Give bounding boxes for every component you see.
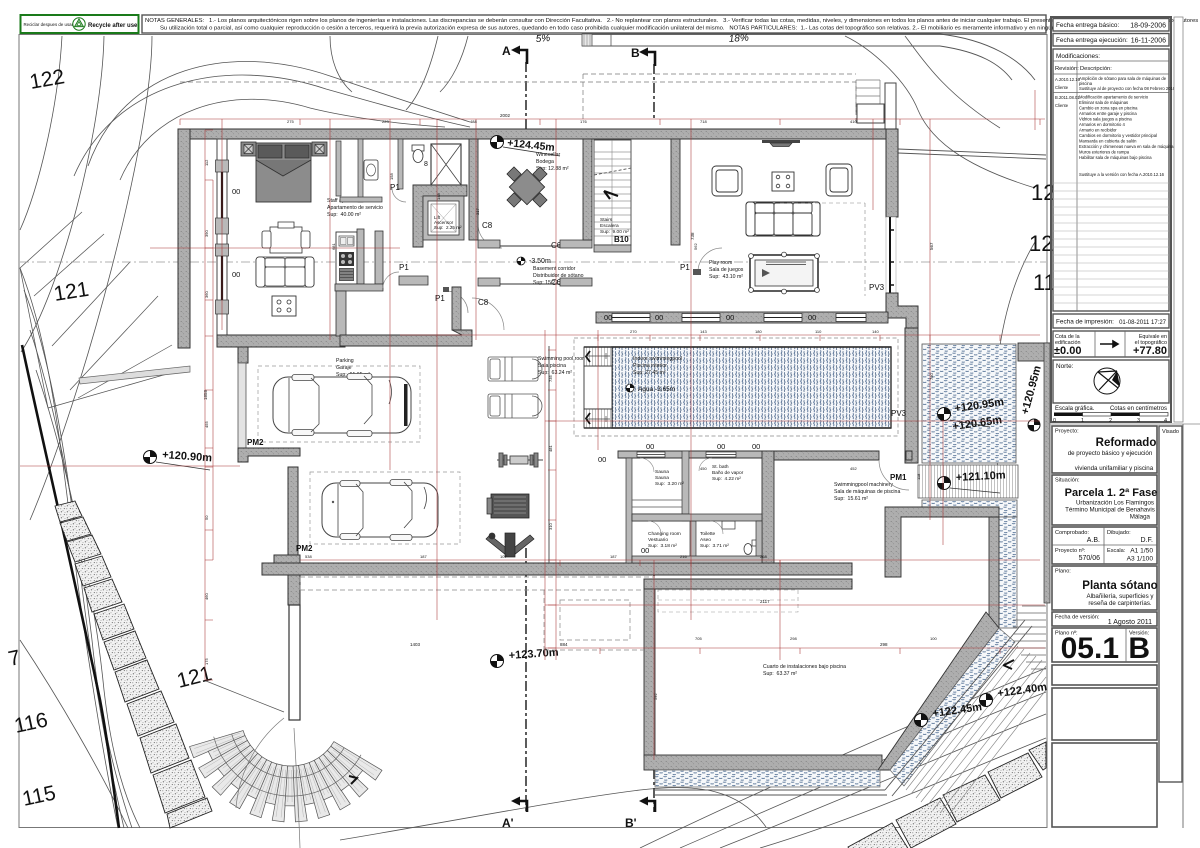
svg-text:A: A (502, 44, 511, 58)
svg-text:Cambio en zona spa en piscina: Cambio en zona spa en piscina (1079, 106, 1138, 111)
svg-text:Revisión:: Revisión: (1055, 66, 1079, 72)
svg-text:18-09-2006: 18-09-2006 (1130, 23, 1166, 30)
svg-text:Su utilización total o parcial: Su utilización total o parcial, así como… (160, 26, 1137, 32)
svg-text:5%: 5% (535, 33, 550, 45)
svg-text:718: 718 (700, 119, 707, 124)
svg-text:Situación:: Situación: (1055, 478, 1080, 484)
svg-text:Aseo: Aseo (700, 537, 711, 543)
svg-text:Toilette: Toilette (700, 531, 716, 537)
svg-text:reseña de carpinterías.: reseña de carpinterías. (1088, 600, 1152, 607)
svg-text:216: 216 (680, 554, 687, 559)
svg-text:12: 12 (1029, 231, 1053, 256)
svg-text:310: 310 (548, 523, 553, 530)
svg-text:Sup: 3.20 m²: Sup: 3.20 m² (655, 481, 684, 487)
svg-text:Fecha de impresión:: Fecha de impresión: (1056, 319, 1114, 326)
svg-text:Sup: 4.22 m²: Sup: 4.22 m² (712, 476, 741, 482)
svg-text:Mansarda en cubierta de salón: Mansarda en cubierta de salón (1079, 139, 1137, 144)
svg-text:2117: 2117 (760, 599, 770, 604)
svg-text:592: 592 (653, 693, 658, 700)
svg-text:Cuarto de instalaciones bajo p: Cuarto de instalaciones bajo piscina (763, 664, 846, 670)
svg-text:Escala:: Escala: (1107, 548, 1126, 554)
svg-text:Modificación apartamento de se: Modificación apartamento de servicio (1079, 95, 1149, 100)
svg-text:00: 00 (604, 313, 612, 322)
svg-text:Sup: 63.24 m²: Sup: 63.24 m² (538, 370, 572, 376)
svg-text:567: 567 (929, 242, 934, 250)
svg-text:Sauna: Sauna (655, 475, 669, 481)
svg-text:00: 00 (646, 442, 654, 451)
svg-text:50: 50 (204, 515, 209, 520)
svg-text:452: 452 (850, 466, 857, 471)
svg-text:Sauna: Sauna (655, 469, 669, 475)
svg-text:390: 390 (204, 230, 209, 237)
svg-text:Escalera: Escalera (600, 223, 619, 229)
svg-text:Cliente: Cliente (1055, 85, 1069, 90)
svg-text:Amplición de sótano para sala: Amplición de sótano para sala de máquina… (1079, 76, 1167, 81)
svg-text:Reciclar despues de usar: Reciclar despues de usar (24, 22, 74, 27)
svg-text:Armario en recibidor: Armario en recibidor (1079, 128, 1117, 133)
svg-text:Play room: Play room (709, 260, 732, 266)
svg-text:16-11-2006: 16-11-2006 (1131, 38, 1166, 45)
svg-text:Bodega: Bodega (536, 159, 554, 165)
svg-text:P1: P1 (435, 294, 445, 303)
svg-text:481: 481 (548, 445, 553, 452)
svg-text:Comprobado:: Comprobado: (1055, 530, 1089, 536)
svg-text:538: 538 (305, 554, 312, 559)
svg-text:18%: 18% (728, 33, 749, 45)
svg-text:118: 118 (916, 473, 921, 480)
svg-text:00: 00 (232, 187, 240, 196)
svg-text:180: 180 (755, 329, 762, 334)
svg-text:Baño de vapor: Baño de vapor (712, 470, 744, 476)
svg-text:Habilitar sala de máquinas baj: Habilitar sala de máquinas bajo piscina (1079, 155, 1152, 160)
svg-text:B': B' (625, 816, 637, 830)
svg-text:A.B.: A.B. (1087, 537, 1100, 544)
svg-text:P1: P1 (680, 263, 690, 272)
svg-text:P1: P1 (390, 183, 400, 192)
svg-text:0: 0 (1053, 418, 1056, 424)
svg-text:4: 4 (1164, 418, 1167, 424)
svg-text:187: 187 (420, 554, 427, 559)
svg-text:Cliente: Cliente (1055, 103, 1069, 108)
svg-text:8: 8 (424, 161, 428, 168)
svg-text:112: 112 (204, 159, 209, 166)
svg-text:Proyecto nº:: Proyecto nº: (1055, 547, 1086, 554)
svg-text:Vestuario: Vestuario (648, 537, 668, 543)
svg-text:410: 410 (850, 119, 857, 124)
svg-text:360: 360 (204, 291, 209, 298)
svg-text:Cambios en dormitorio y vestid: Cambios en dormitorio y vestidor princip… (1079, 133, 1157, 138)
svg-text:270: 270 (630, 329, 637, 334)
svg-text:Fecha de versión:: Fecha de versión: (1055, 615, 1100, 621)
svg-text:00: 00 (641, 546, 649, 555)
svg-text:735: 735 (548, 375, 553, 382)
svg-text:PM2: PM2 (247, 438, 264, 447)
svg-text:Visado: Visado (1162, 429, 1179, 435)
svg-text:1 Agosto 2011: 1 Agosto 2011 (1108, 619, 1152, 626)
svg-text:Recycle after use: Recycle after use (88, 23, 138, 29)
svg-text:P1: P1 (399, 263, 409, 272)
svg-text:00: 00 (232, 270, 240, 279)
svg-text:Sala de juegos: Sala de juegos (709, 267, 744, 273)
svg-text:460: 460 (204, 593, 209, 600)
svg-text:A': A' (502, 816, 514, 830)
svg-text:B.2011.08.01: B.2011.08.01 (1055, 95, 1080, 100)
svg-text:Sala de máquinas de piscina: Sala de máquinas de piscina (834, 489, 900, 495)
svg-text:00: 00 (726, 313, 734, 322)
svg-text:00: 00 (655, 313, 663, 322)
svg-text:Agua -3.65m: Agua -3.65m (638, 386, 675, 393)
svg-text:PM1: PM1 (890, 473, 907, 482)
svg-text:Swimmingpool machinery: Swimmingpool machinery (834, 482, 894, 488)
svg-text:223: 223 (382, 119, 389, 124)
svg-text:B: B (631, 46, 640, 60)
svg-text:+77.80: +77.80 (1133, 345, 1167, 357)
svg-text:488: 488 (470, 119, 477, 124)
svg-text:268: 268 (760, 554, 767, 559)
svg-text:Changing room: Changing room (648, 531, 681, 537)
svg-text:143: 143 (700, 329, 707, 334)
svg-text:A.2010.12.16: A.2010.12.16 (1055, 77, 1081, 82)
svg-text:D.F.: D.F. (1141, 537, 1154, 544)
svg-text:Cotas en centímetros: Cotas en centímetros (1110, 406, 1167, 412)
svg-text:00: 00 (598, 455, 606, 464)
svg-text:01-08-2011 17:27: 01-08-2011 17:27 (1119, 320, 1167, 326)
svg-text:Sup: 3.18 m²: Sup: 3.18 m² (648, 543, 677, 549)
svg-text:187: 187 (610, 554, 617, 559)
svg-text:705: 705 (695, 636, 702, 641)
svg-text:681: 681 (331, 243, 336, 250)
svg-text:Sup: 40.00 m²: Sup: 40.00 m² (327, 212, 361, 218)
svg-text:Parking: Parking (336, 358, 354, 364)
svg-text:298: 298 (880, 642, 888, 647)
svg-text:2002: 2002 (500, 113, 511, 118)
svg-text:110: 110 (815, 329, 822, 334)
svg-text:Planta sótano: Planta sótano (1082, 580, 1157, 592)
svg-text:Málaga: Málaga (1130, 514, 1151, 521)
svg-text:450: 450 (700, 466, 707, 471)
svg-text:B10: B10 (614, 235, 629, 244)
svg-text:Sustituye al de proyecto con f: Sustituye al de proyecto con fecha 08 Fe… (1079, 86, 1176, 91)
svg-text:St. bath: St. bath (712, 464, 729, 470)
svg-text:148: 148 (436, 193, 441, 200)
svg-text:Proyecto:: Proyecto: (1055, 429, 1079, 435)
svg-text:Plano:: Plano: (1055, 569, 1071, 575)
svg-text:Reformado: Reformado (1096, 437, 1157, 449)
svg-text:Stairs: Stairs (600, 217, 613, 223)
svg-text:Modificaciones:: Modificaciones: (1056, 53, 1100, 60)
svg-text:Armarios entre garaje y piscin: Armarios entre garaje y piscina (1079, 111, 1137, 116)
svg-text:562: 562 (693, 243, 698, 250)
svg-text:Eliminar sala de máquinas: Eliminar sala de máquinas (1079, 100, 1128, 105)
svg-text:Sup: 43.10 m²: Sup: 43.10 m² (709, 274, 743, 280)
svg-text:Fecha entrega básico:: Fecha entrega básico: (1056, 22, 1119, 29)
svg-text:05.1: 05.1 (1061, 632, 1119, 665)
svg-text:Apartamento de servicio: Apartamento de servicio (327, 205, 383, 211)
svg-text:884: 884 (560, 642, 568, 647)
svg-text:Sup: 27.45 m²: Sup: 27.45 m² (633, 370, 666, 376)
svg-text:NOTAS GENERALES: 1.- Los pla: NOTAS GENERALES: 1.- Los planos arquitec… (145, 18, 1200, 24)
svg-text:vivienda unifamiliar y piscina: vivienda unifamiliar y piscina (1075, 465, 1154, 472)
svg-text:00: 00 (752, 442, 760, 451)
svg-text:Vidrios sala juegos a piscina: Vidrios sala juegos a piscina (1079, 117, 1132, 122)
svg-text:PM2: PM2 (296, 544, 313, 553)
svg-text:00: 00 (717, 442, 725, 451)
svg-text:275: 275 (287, 119, 294, 124)
svg-text:Piscina interior: Piscina interior (633, 363, 667, 369)
svg-text:1: 1 (1081, 418, 1084, 424)
svg-text:Descripción:: Descripción: (1080, 66, 1112, 72)
svg-text:176: 176 (580, 119, 587, 124)
svg-text:C8: C8 (482, 221, 493, 230)
svg-text:A3 1/100: A3 1/100 (1127, 556, 1154, 563)
svg-text:A1 1/50: A1 1/50 (1130, 548, 1153, 555)
svg-text:1403: 1403 (410, 642, 421, 647)
svg-text:±0.00: ±0.00 (1054, 345, 1081, 357)
svg-text:Indoor swimmingpool: Indoor swimmingpool (633, 356, 682, 362)
svg-text:C8: C8 (478, 298, 489, 307)
svg-text:Sustituye a la versión con fec: Sustituye a la versión con fecha A.2010.… (1079, 172, 1165, 177)
svg-text:Sup: 3.71 m²: Sup: 3.71 m² (700, 543, 729, 549)
svg-text:Extracción y chimeneas nueva e: Extracción y chimeneas nueva en sala de … (1079, 144, 1176, 149)
svg-text:PV3: PV3 (891, 409, 907, 418)
svg-text:140: 140 (872, 329, 879, 334)
svg-text:Sup: 63.37 m²: Sup: 63.37 m² (763, 671, 797, 677)
svg-text:1858: 1858 (203, 389, 208, 400)
svg-text:de proyecto básico y ejecución: de proyecto básico y ejecución (1068, 450, 1153, 457)
svg-text:3: 3 (1137, 418, 1140, 424)
svg-text:Basement corridor: Basement corridor (533, 266, 576, 272)
svg-text:Albañilería, superficies y: Albañilería, superficies y (1086, 593, 1154, 600)
svg-text:Parcela 1. 2ª Fase: Parcela 1. 2ª Fase (1065, 487, 1158, 499)
svg-text:780: 780 (929, 373, 934, 380)
svg-text:100: 100 (930, 636, 937, 641)
svg-text:Urbanización Los Flamingos: Urbanización Los Flamingos (1076, 500, 1154, 507)
svg-text:Dibujado:: Dibujado: (1107, 530, 1131, 536)
svg-text:Sup: 2.25 m²: Sup: 2.25 m² (434, 225, 462, 230)
svg-text:175: 175 (204, 658, 209, 665)
svg-text:158: 158 (389, 173, 394, 180)
svg-text:00: 00 (808, 313, 816, 322)
svg-text:455: 455 (204, 421, 209, 428)
svg-text:Norte:: Norte: (1056, 363, 1074, 370)
svg-text:B: B (1128, 632, 1150, 665)
svg-text:Muros exteriores de rampa: Muros exteriores de rampa (1079, 150, 1130, 155)
svg-text:317: 317 (475, 208, 480, 215)
svg-text:298: 298 (790, 636, 797, 641)
svg-text:107: 107 (500, 554, 507, 559)
svg-text:-3.50m: -3.50m (529, 258, 551, 265)
svg-text:Armarios en dormitorio 4: Armarios en dormitorio 4 (1079, 122, 1126, 127)
svg-text:PV3: PV3 (869, 283, 885, 292)
svg-text:Sup: 15.61 m²: Sup: 15.61 m² (834, 496, 868, 502)
svg-text:Fecha entrega ejecución:: Fecha entrega ejecución: (1056, 37, 1128, 44)
svg-text:570/06: 570/06 (1079, 555, 1101, 562)
svg-text:738: 738 (690, 232, 695, 240)
svg-text:Término Municipal de Benahavis: Término Municipal de Benahavis (1065, 507, 1155, 514)
svg-text:2: 2 (1109, 418, 1112, 424)
svg-text:Escala gráfica.: Escala gráfica. (1055, 406, 1095, 412)
